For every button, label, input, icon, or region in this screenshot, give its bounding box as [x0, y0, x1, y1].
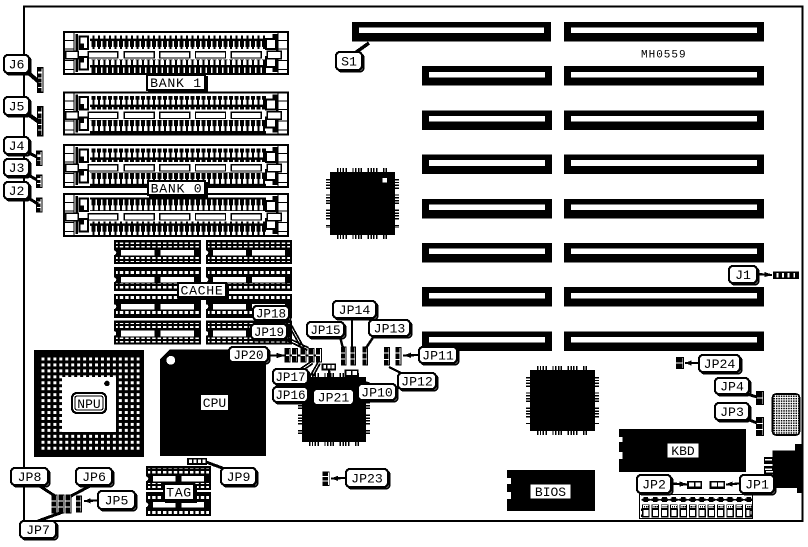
svg-text:JP9: JP9 [227, 470, 251, 485]
svg-text:J1: J1 [735, 268, 751, 283]
svg-text:TAG: TAG [166, 486, 192, 501]
svg-text:J3: J3 [9, 161, 25, 176]
svg-text:J2: J2 [9, 184, 25, 199]
svg-text:JP3: JP3 [720, 405, 744, 420]
svg-text:JP13: JP13 [374, 322, 406, 337]
svg-text:JP5: JP5 [105, 494, 129, 509]
svg-text:JP2: JP2 [642, 478, 666, 493]
svg-text:JP15: JP15 [310, 324, 340, 338]
svg-text:JP24: JP24 [704, 357, 736, 372]
svg-text:BIOS: BIOS [535, 485, 566, 500]
svg-text:JP16: JP16 [275, 389, 305, 403]
svg-text:JP10: JP10 [361, 386, 393, 401]
svg-text:S1: S1 [341, 55, 357, 70]
svg-text:JP18: JP18 [256, 308, 286, 322]
svg-text:MH0559: MH0559 [641, 50, 687, 62]
svg-text:JP12: JP12 [401, 375, 433, 390]
svg-text:JP21: JP21 [318, 391, 350, 406]
svg-text:NPU: NPU [77, 397, 100, 412]
svg-text:KBD: KBD [671, 444, 695, 459]
svg-text:J4: J4 [9, 139, 25, 154]
svg-text:JP1: JP1 [745, 478, 769, 493]
svg-text:JP4: JP4 [720, 380, 744, 395]
svg-text:JP6: JP6 [82, 470, 106, 485]
svg-text:CACHE: CACHE [180, 284, 223, 299]
svg-text:JP23: JP23 [351, 472, 383, 487]
svg-text:JP17: JP17 [275, 371, 305, 385]
svg-text:JP19: JP19 [254, 326, 284, 340]
svg-text:JP7: JP7 [26, 523, 50, 538]
svg-text:J6: J6 [9, 58, 25, 73]
svg-text:JP8: JP8 [18, 470, 42, 485]
svg-text:JP20: JP20 [233, 349, 263, 363]
svg-text:JP14: JP14 [339, 303, 371, 318]
svg-text:CPU: CPU [203, 396, 226, 411]
svg-text:BANK 1: BANK 1 [150, 76, 202, 91]
svg-text:JP11: JP11 [422, 349, 454, 364]
svg-text:J5: J5 [9, 100, 25, 115]
svg-text:BANK 0: BANK 0 [151, 182, 203, 197]
